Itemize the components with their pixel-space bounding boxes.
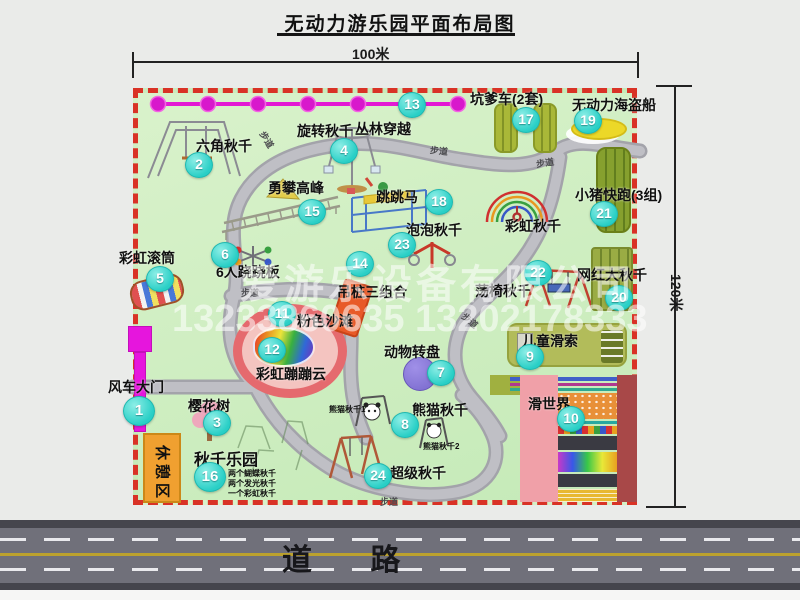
road: 道 路	[0, 520, 800, 590]
badge-super-swing: 24	[364, 463, 392, 489]
badge-kids-zipline: 9	[516, 344, 544, 370]
page-title: 无动力游乐园平面布局图	[0, 9, 800, 36]
rest-area-label: 休憩区	[153, 439, 174, 509]
badge-hanging-piles: 14	[346, 251, 374, 277]
rest-area-block: 休憩区	[143, 433, 181, 503]
badge-pink-beach: 11	[268, 301, 296, 327]
dim-tick-left	[132, 52, 134, 78]
slide-world-rainbow-slide	[558, 452, 617, 472]
badge-hexagon-swing: 2	[185, 152, 213, 178]
path-label-2: 步道	[429, 143, 448, 158]
path-label-3: 步道	[535, 155, 555, 170]
label-animal-turntable: 动物转盘	[384, 342, 440, 362]
badge-seesaw: 6	[211, 242, 239, 268]
label-piggy-run: 小猪快跑(3组)	[575, 185, 662, 205]
label-panda-swing-2: 熊猫秋千2	[423, 441, 459, 452]
slide-world-wavy-slide	[558, 489, 617, 502]
park-layout-plan: 无动力游乐园平面布局图 100米 120米	[0, 0, 800, 600]
badge-climbing-peak: 15	[298, 199, 326, 225]
label-windmill-gate: 风车大门	[108, 377, 164, 397]
badge-rainbow-bounce-cloud: 12	[258, 337, 286, 363]
slide-world-dark-band-1	[558, 436, 617, 450]
slide-world-dark-band-2	[558, 474, 617, 487]
label-panda-swing: 熊猫秋千	[412, 400, 468, 420]
badge-rotating-swing: 4	[330, 138, 358, 164]
label-swing-chair: 荡椅秋千	[475, 281, 531, 301]
badge-jumping-horse: 18	[425, 189, 453, 215]
label-rainbow-roller: 彩虹滚筒	[119, 248, 175, 268]
label-jumping-horse: 跳跳马	[376, 187, 418, 207]
road-label: 道 路	[282, 535, 418, 579]
label-rainbow-swing: 彩虹秋千	[505, 216, 561, 236]
badge-swing-chair: 22	[524, 260, 552, 286]
path-label-6: 步道	[380, 495, 398, 508]
label-rainbow-bounce-cloud: 彩虹蹦蹦云	[256, 364, 326, 384]
badge-animal-turntable: 7	[427, 360, 455, 386]
windmill-gate-top	[128, 326, 152, 352]
slide-world-maroon-band	[617, 375, 637, 502]
badge-slide-world: 10	[557, 406, 585, 432]
badge-panda-swing: 8	[391, 412, 419, 438]
dim-tick-right	[637, 52, 639, 78]
badge-jungle-crossing: 13	[398, 92, 426, 118]
slide-world-block	[490, 373, 637, 504]
dim-tick-top	[656, 85, 692, 87]
badge-swing-park: 16	[194, 462, 226, 492]
bottom-margin	[0, 590, 800, 600]
path-label-4: 步道	[241, 286, 259, 299]
dim-label-height: 120米	[666, 274, 686, 322]
kids-zipline-tower	[601, 330, 623, 363]
badge-big-net-swing: 20	[605, 285, 633, 311]
badge-rainbow-roller: 5	[146, 266, 174, 292]
badge-pit-car: 17	[512, 107, 540, 133]
badge-bubble-swing: 23	[388, 232, 416, 258]
label-jungle-crossing: 丛林穿越	[355, 119, 411, 139]
dim-tick-bottom	[646, 506, 686, 508]
badge-pirate-ship: 19	[574, 108, 602, 134]
title-underline	[277, 33, 515, 36]
label-pink-beach: 粉色沙滩	[297, 311, 353, 331]
label-hanging-piles: 吊桩三组合	[337, 282, 407, 302]
label-pit-car: 坑爹车(2套)	[470, 89, 543, 109]
label-swing-park-sub3: 一个彩虹秋千	[228, 488, 276, 499]
label-super-swing: 超级秋千	[390, 463, 446, 483]
badge-cherry-tree: 3	[203, 410, 231, 436]
label-big-net-swing: 网红大秋千	[577, 265, 647, 285]
badge-windmill-gate: 1	[123, 396, 155, 426]
badge-piggy-run: 21	[590, 201, 618, 227]
dim-label-width: 100米	[352, 44, 389, 64]
label-panda-swing-1: 熊猫秋千1	[329, 404, 365, 415]
label-bubble-swing: 泡泡秋千	[406, 220, 462, 240]
label-climbing-peak: 勇攀高峰	[268, 178, 324, 198]
